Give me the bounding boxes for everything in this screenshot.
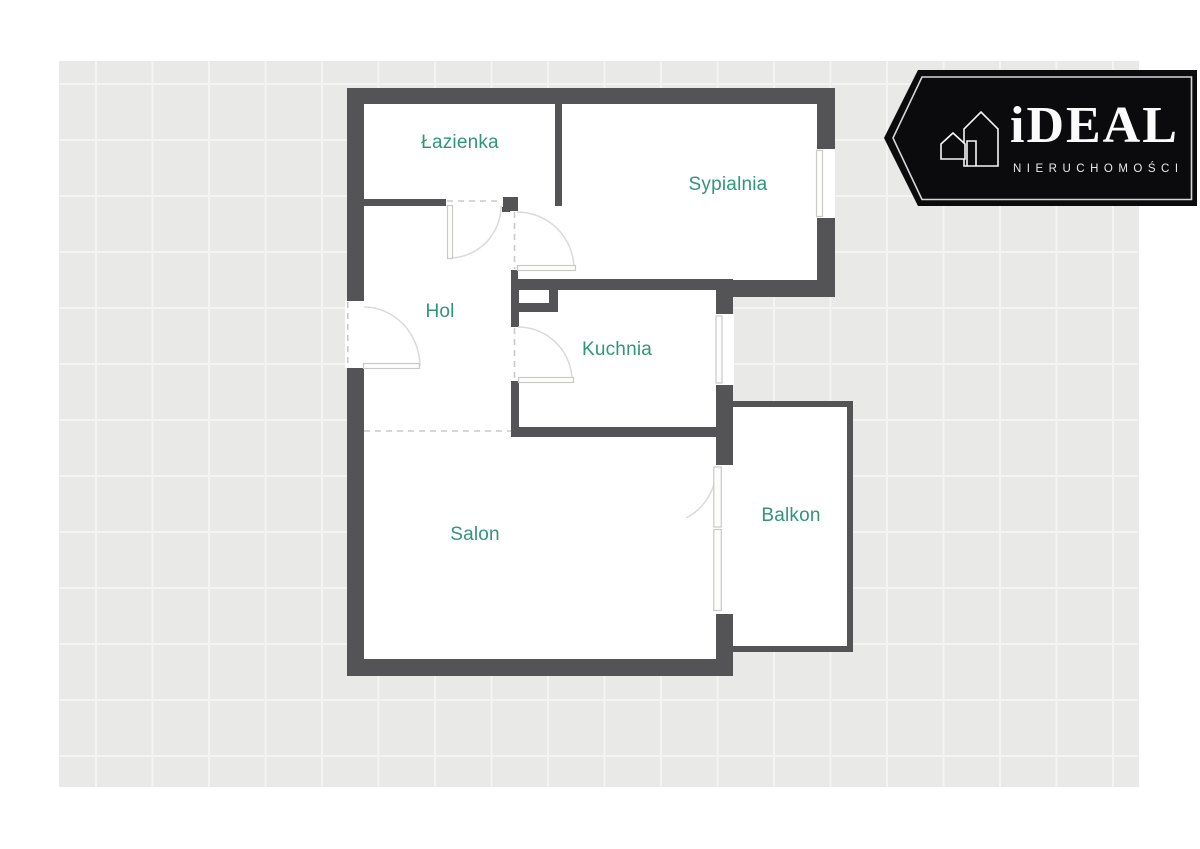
kitchen-window-frame: [716, 316, 722, 383]
floor-plan-drawing: [0, 0, 1200, 849]
bathroom-door-leaf: [448, 206, 453, 259]
floor-plan-page: Łazienka Sypialnia Hol Kuchnia Salon Bal…: [0, 0, 1200, 849]
room-label-sypialnia: Sypialnia: [689, 174, 768, 196]
room-label-salon: Salon: [450, 524, 500, 546]
balcony-window-frame: [714, 530, 722, 611]
room-label-balkon: Balkon: [761, 505, 820, 527]
wall-junction-block: [502, 197, 518, 212]
room-floor-areas: [364, 104, 853, 660]
room-label-kuchnia: Kuchnia: [582, 339, 652, 361]
wall-bedroom-bottom-east: [716, 280, 835, 297]
room-label-lazienka: Łazienka: [421, 132, 499, 154]
wall-left: [347, 88, 364, 676]
wall-balcony-top: [727, 401, 853, 407]
wall-hall-bedroom-stub: [511, 270, 518, 280]
wall-balcony-bottom: [727, 646, 853, 652]
wall-kitchen-top: [511, 279, 733, 290]
entrance-door-leaf: [364, 364, 420, 369]
kitchen-door-leaf: [519, 378, 574, 383]
wall-bathroom-bottom: [364, 199, 447, 206]
wall-bottom: [347, 659, 733, 676]
bedroom-window-frame: [817, 151, 823, 217]
wall-kitchen-shaft-bottom: [511, 303, 558, 312]
wall-bathroom-right: [555, 104, 562, 206]
wall-kitchen-left-lower: [511, 381, 519, 433]
room-label-hol: Hol: [425, 301, 454, 323]
wall-kitchen-bottom: [511, 427, 716, 437]
bathroom-door-opening: [446, 197, 503, 207]
wall-top: [347, 88, 835, 104]
balcony-door-leaf: [714, 467, 722, 527]
bedroom-door-leaf: [518, 266, 576, 271]
wall-balcony-right: [847, 401, 853, 652]
